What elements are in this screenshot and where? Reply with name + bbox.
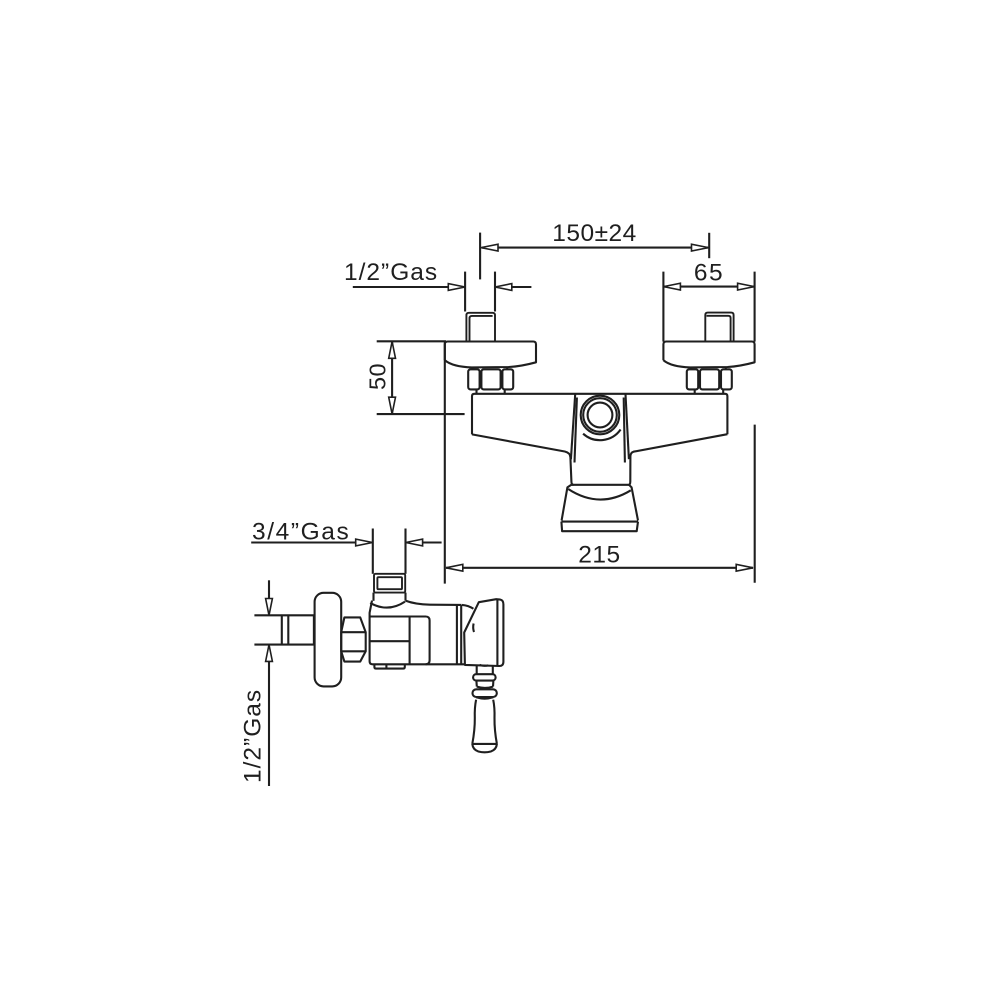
svg-text:65: 65 [694,260,724,287]
svg-text:215: 215 [578,542,620,569]
svg-text:1/2”Gas: 1/2”Gas [344,259,438,286]
svg-text:1/2”Gas: 1/2”Gas [240,689,267,783]
svg-text:150±24: 150±24 [552,220,637,247]
svg-text:50: 50 [365,363,391,390]
